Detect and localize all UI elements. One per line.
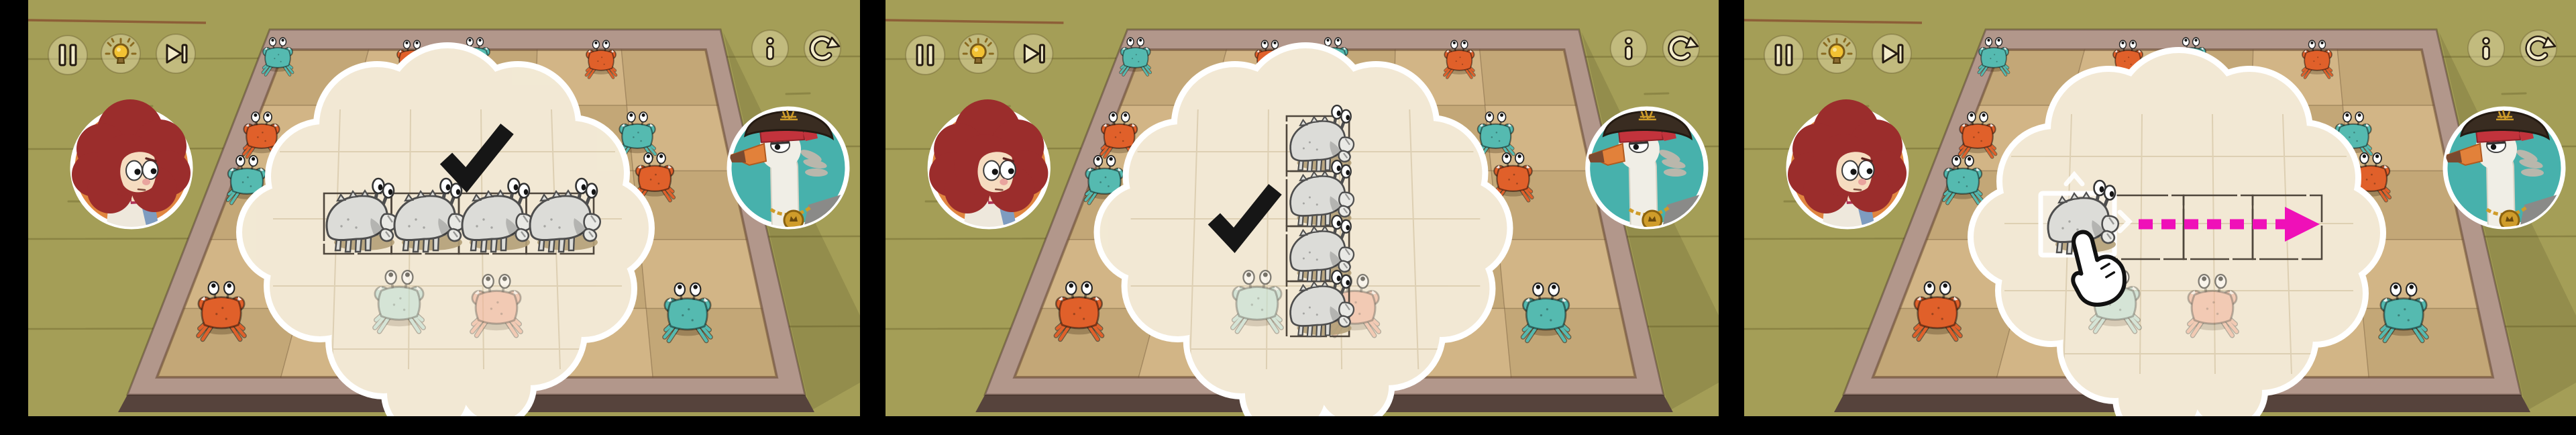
game-panel-2 — [885, 0, 1719, 416]
pause-button[interactable] — [1764, 36, 1803, 75]
pause-button[interactable] — [906, 36, 945, 75]
restart-button[interactable] — [1663, 30, 1699, 66]
skip-button[interactable] — [1014, 34, 1053, 73]
restart-button[interactable] — [2520, 30, 2557, 66]
hint-button[interactable] — [959, 34, 998, 73]
hint-button[interactable] — [101, 34, 140, 73]
tutorial-strip — [0, 0, 2576, 435]
game-panel-3 — [1744, 0, 2576, 416]
skip-button[interactable] — [1872, 34, 1911, 73]
info-button[interactable] — [1611, 30, 1647, 66]
info-button[interactable] — [752, 30, 788, 66]
skip-button[interactable] — [156, 34, 195, 73]
restart-button[interactable] — [804, 30, 841, 66]
pause-button[interactable] — [48, 36, 87, 75]
game-panel-1 — [28, 0, 860, 416]
info-button[interactable] — [2468, 30, 2504, 66]
hint-button[interactable] — [1817, 34, 1856, 73]
